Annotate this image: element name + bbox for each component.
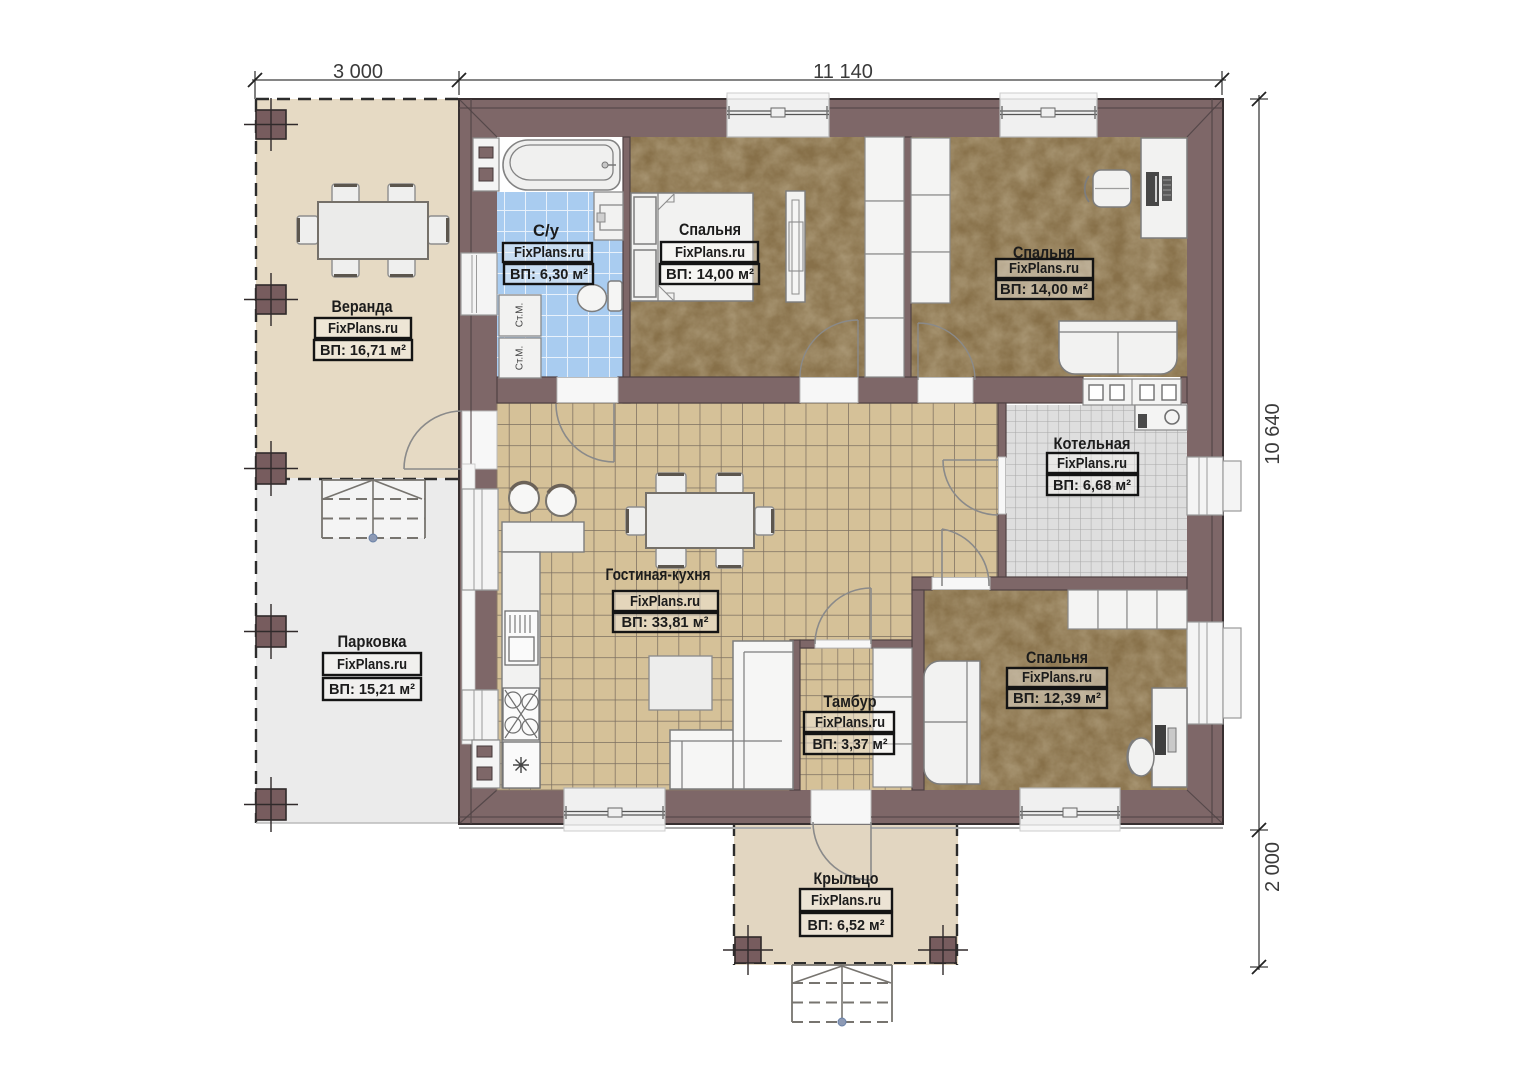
svg-text:Веранда: Веранда bbox=[332, 297, 393, 316]
svg-text:ВП: 12,39 м²: ВП: 12,39 м² bbox=[1013, 690, 1101, 707]
svg-text:ВП: 15,21 м²: ВП: 15,21 м² bbox=[329, 681, 415, 698]
svg-text:FixPlans.ru: FixPlans.ru bbox=[1022, 669, 1092, 686]
svg-text:ВП: 3,37 м²: ВП: 3,37 м² bbox=[813, 736, 888, 753]
svg-text:Котельная: Котельная bbox=[1054, 434, 1131, 453]
svg-text:FixPlans.ru: FixPlans.ru bbox=[811, 892, 881, 909]
svg-text:Ст.М.: Ст.М. bbox=[515, 346, 526, 371]
svg-text:Гостиная-кухня: Гостиная-кухня bbox=[606, 565, 711, 584]
svg-text:FixPlans.ru: FixPlans.ru bbox=[815, 714, 885, 731]
svg-text:3 000: 3 000 bbox=[333, 61, 383, 83]
svg-text:FixPlans.ru: FixPlans.ru bbox=[328, 320, 398, 337]
svg-text:Тамбур: Тамбур bbox=[824, 692, 877, 711]
svg-text:FixPlans.ru: FixPlans.ru bbox=[1057, 455, 1127, 472]
svg-text:FixPlans.ru: FixPlans.ru bbox=[1009, 260, 1079, 277]
svg-text:Крыльцо: Крыльцо bbox=[814, 869, 879, 888]
svg-text:ВП: 14,00 м²: ВП: 14,00 м² bbox=[1000, 281, 1088, 298]
svg-text:FixPlans.ru: FixPlans.ru bbox=[337, 656, 407, 673]
svg-text:ВП: 6,68 м²: ВП: 6,68 м² bbox=[1053, 477, 1131, 494]
svg-text:2 000: 2 000 bbox=[1262, 842, 1284, 892]
svg-text:FixPlans.ru: FixPlans.ru bbox=[630, 593, 700, 610]
svg-text:11 140: 11 140 bbox=[813, 61, 873, 83]
svg-text:FixPlans.ru: FixPlans.ru bbox=[514, 244, 584, 261]
svg-text:ВП: 33,81 м²: ВП: 33,81 м² bbox=[622, 614, 709, 631]
svg-text:Спальня: Спальня bbox=[679, 220, 741, 239]
svg-text:С/у: С/у bbox=[533, 221, 560, 240]
svg-text:ВП: 16,71 м²: ВП: 16,71 м² bbox=[320, 342, 406, 359]
svg-text:Спальня: Спальня bbox=[1026, 648, 1088, 667]
svg-text:ВП: 6,30 м²: ВП: 6,30 м² bbox=[510, 266, 588, 283]
svg-text:Парковка: Парковка bbox=[338, 632, 407, 651]
svg-text:ВП: 6,52 м²: ВП: 6,52 м² bbox=[808, 917, 885, 934]
svg-text:10 640: 10 640 bbox=[1262, 403, 1284, 464]
svg-text:ВП: 14,00 м²: ВП: 14,00 м² bbox=[666, 266, 754, 283]
svg-text:Ст.М.: Ст.М. bbox=[515, 303, 526, 328]
svg-text:FixPlans.ru: FixPlans.ru bbox=[675, 244, 745, 261]
